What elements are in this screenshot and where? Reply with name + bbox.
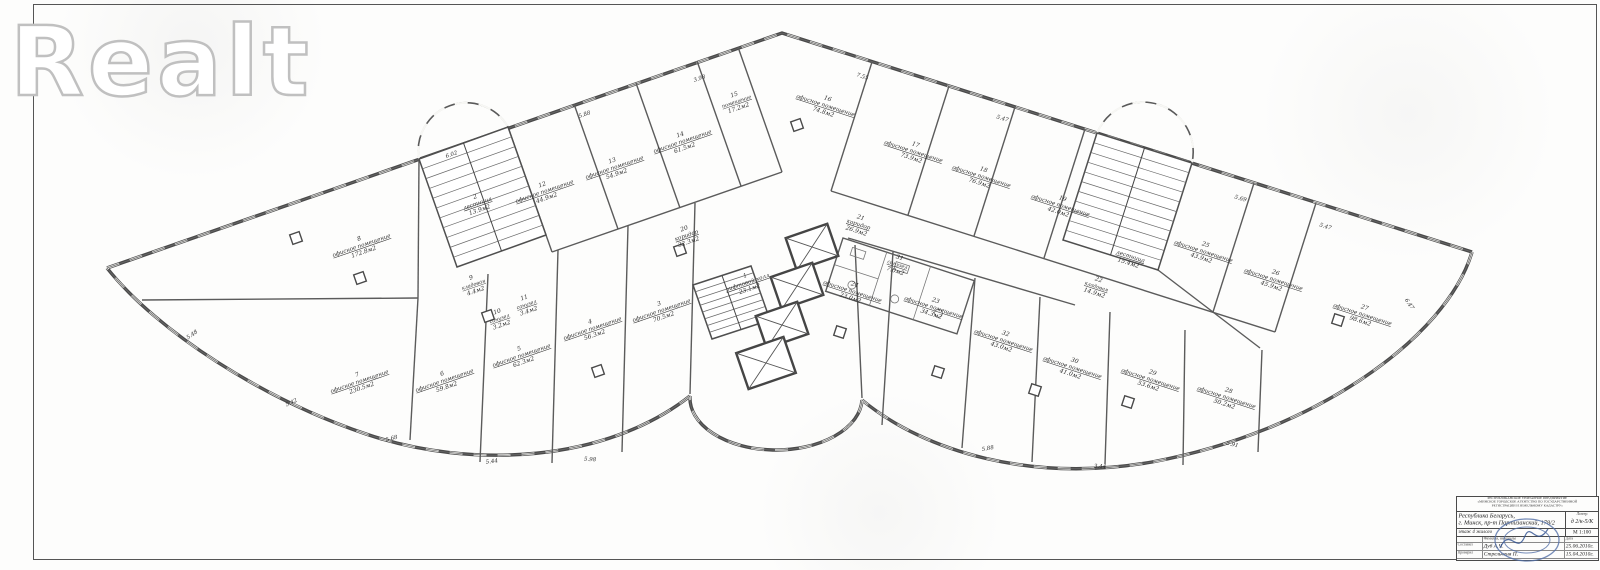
stairwell bbox=[1063, 133, 1192, 270]
room-label: 7офисное помещение230.5м2 bbox=[327, 361, 392, 401]
dimension-value: 5.48 bbox=[186, 329, 200, 341]
round-stamp bbox=[1492, 516, 1562, 564]
dimension-value: 5.98 bbox=[584, 457, 597, 464]
dimension-value: 6.47 bbox=[1403, 298, 1415, 312]
checker-role: Проверил bbox=[1457, 551, 1473, 555]
svg-text:6: 6 bbox=[439, 370, 445, 378]
column bbox=[290, 232, 303, 245]
column bbox=[1029, 384, 1042, 397]
dimension-value: 5.69 bbox=[1234, 194, 1248, 204]
date-column-header: Дата bbox=[1565, 537, 1585, 541]
column bbox=[1122, 396, 1135, 409]
title-block-organization: РЕСПУБЛИКАНСКОЕ УНИТАРНОЕ ПРЕДПРИЯТИЕ «М… bbox=[1457, 497, 1598, 512]
room-label: 9кладовая4.4м2 bbox=[458, 271, 488, 299]
svg-text:8: 8 bbox=[356, 235, 362, 243]
dimension-value: 5.47 bbox=[996, 114, 1010, 124]
room-label: 32офисное помещение43.0м2 bbox=[971, 321, 1036, 360]
compiler-role: Составил bbox=[1457, 543, 1473, 547]
dimension-value: 5.47 bbox=[1319, 222, 1333, 232]
liter-cell: Литер д 2/к-5/К bbox=[1566, 512, 1598, 528]
svg-text:7: 7 bbox=[354, 371, 360, 379]
room-label: 21коридор26.9м2 bbox=[844, 211, 874, 239]
scale-cell: М 1:100 bbox=[1566, 529, 1598, 536]
dimension-value: 5.88 bbox=[578, 110, 592, 120]
room-label: 8офисное помещение172.8м2 bbox=[329, 225, 394, 265]
liter-label: Литер bbox=[1571, 512, 1593, 516]
dimension-value: 5.44 bbox=[485, 458, 498, 466]
column bbox=[932, 366, 945, 379]
room-label: 11санузел3.4м2 bbox=[513, 291, 540, 318]
dimension-value: 5.88 bbox=[981, 445, 995, 453]
room-label: 20коридор32.3м2 bbox=[672, 222, 702, 250]
dimension-value: 7.55 bbox=[856, 72, 870, 82]
signature-scribble bbox=[1500, 529, 1548, 548]
column bbox=[354, 272, 367, 285]
svg-text:3: 3 bbox=[656, 300, 662, 308]
room-label: 25офисное помещение43.9м2 bbox=[1171, 232, 1236, 271]
column bbox=[592, 365, 605, 378]
dimension-value: 5.91 bbox=[1226, 441, 1239, 450]
room-label: 28офисное помещение50.2м2 bbox=[1194, 378, 1259, 417]
column bbox=[791, 119, 804, 132]
core-structures bbox=[290, 119, 1345, 409]
elevator-shaft bbox=[736, 337, 796, 389]
checker-date: 15.04.2010г. bbox=[1565, 551, 1591, 557]
room-label: 3офисное помещение70.5м2 bbox=[629, 290, 694, 330]
org-line-3: РЕГИСТРАЦИИ И ЗЕМЕЛЬНОМУ КАДАСТРУ» bbox=[1457, 504, 1598, 508]
liter-value: д 2/к-5/К bbox=[1568, 518, 1595, 525]
room-label: 18офисное помещение76.9м2 bbox=[949, 157, 1014, 196]
room-label: 30офисное помещение41.0м2 bbox=[1040, 348, 1105, 387]
scale-value: М 1:100 bbox=[1570, 529, 1594, 535]
room-label: 23офисное помещение34.3м2 bbox=[901, 288, 966, 327]
room-label: 5офисное помещение62.3м2 bbox=[489, 335, 554, 375]
room-label: 16офисное помещение74.8м2 bbox=[793, 86, 858, 125]
column bbox=[1332, 314, 1345, 327]
realt-watermark-logo: Realt bbox=[10, 6, 313, 118]
svg-text:9: 9 bbox=[468, 274, 474, 282]
room-label: 14офисное помещение61.5м2 bbox=[650, 121, 715, 161]
room-label: 6офисное помещение59.8м2 bbox=[412, 360, 477, 400]
room-label: 29офисное помещение53.6м2 bbox=[1118, 360, 1183, 399]
column bbox=[834, 326, 847, 339]
compiler-date: 25.06.2010г. bbox=[1565, 543, 1591, 549]
room-label: 22кладовая14.9м2 bbox=[1082, 273, 1112, 301]
scanned-floor-plan-page: Realt bbox=[0, 0, 1600, 570]
svg-text:5: 5 bbox=[516, 345, 522, 353]
room-label: 4офисное помещение56.3м2 bbox=[560, 308, 625, 348]
room-label: 15помещение17.2м2 bbox=[719, 87, 755, 117]
room-label: 17офисное помещение73.9м2 bbox=[881, 132, 946, 171]
dimension-value: 3.44 bbox=[1094, 464, 1107, 470]
